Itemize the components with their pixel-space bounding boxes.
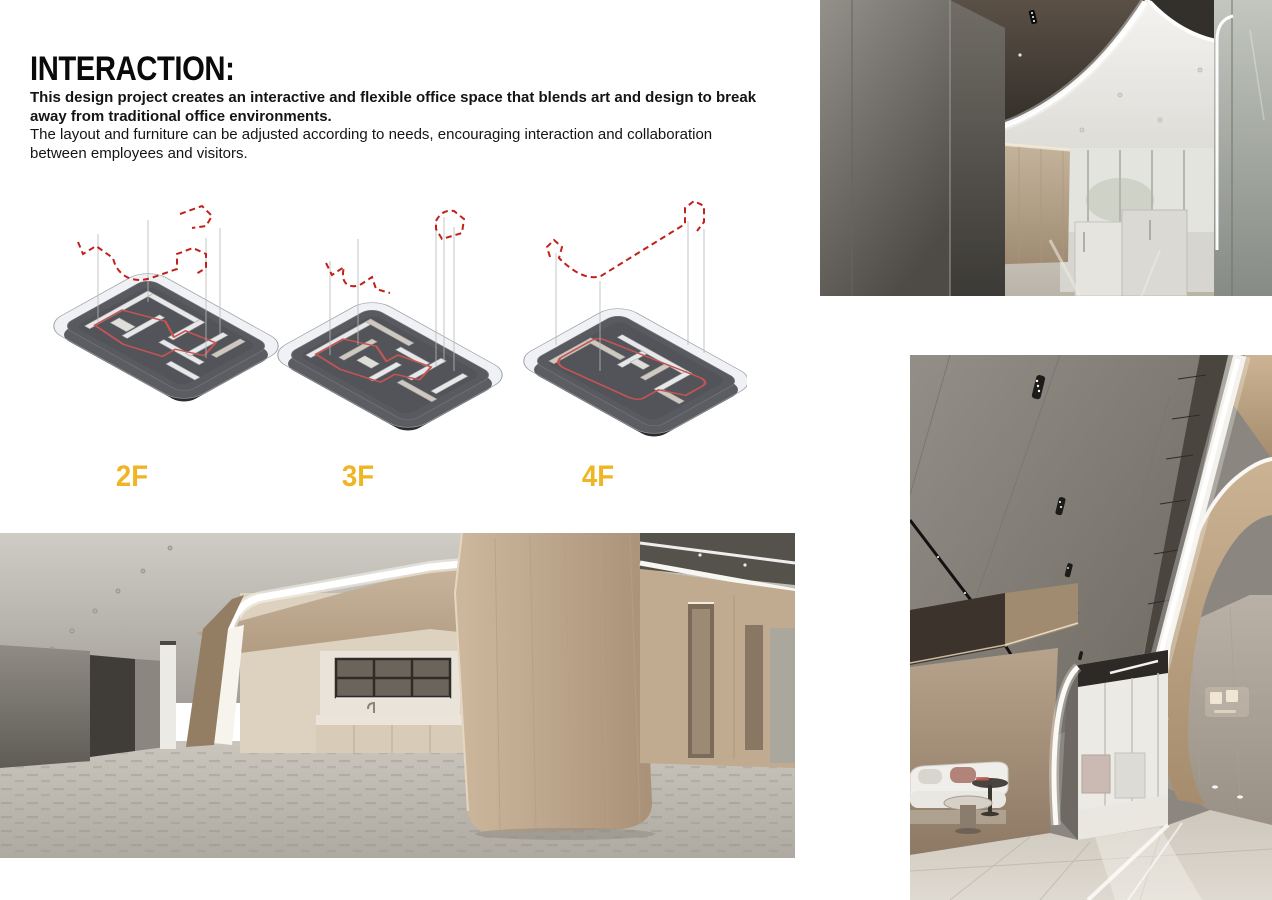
- lower-cabinets: [316, 725, 466, 753]
- red-sky-hook-2f: [180, 206, 212, 228]
- glass-shell-4f: [513, 303, 747, 440]
- foreground-wood-pillar: [455, 533, 655, 840]
- intro-bold-paragraph: This design project creates an interacti…: [30, 89, 756, 126]
- red-sky-outline-4f: [547, 201, 704, 277]
- wall-logo: [1205, 687, 1249, 717]
- glass-column: [1214, 0, 1272, 296]
- left-wall-panels: [820, 0, 1005, 296]
- intro-regular-line-1: The layout and furniture can be adjusted…: [30, 126, 712, 145]
- intro-bold-line-2: away from traditional office environment…: [30, 108, 756, 127]
- door-recess-2: [745, 625, 763, 750]
- slab-3f: [267, 297, 505, 434]
- slab-4f: [513, 303, 747, 440]
- intro-bold-line-1: This design project creates an interacti…: [30, 89, 756, 108]
- counter: [316, 715, 466, 725]
- floor-diagram-4f: [492, 195, 747, 470]
- glass-shell-3f: [267, 297, 505, 434]
- floor-label-4f: 4F: [569, 460, 628, 494]
- page-title: INTERACTION:: [30, 50, 234, 89]
- gray-cushion: [918, 769, 942, 784]
- intro-regular-paragraph: The layout and furniture can be adjusted…: [30, 126, 712, 163]
- photo-pantry-corridor: [0, 533, 795, 858]
- table-book: [976, 777, 989, 781]
- desk-partition: [1082, 755, 1110, 793]
- portfolio-page: INTERACTION: This design project creates…: [0, 0, 1272, 900]
- floor-label-3f: 3F: [329, 460, 388, 494]
- floor-label-2f: 2F: [103, 460, 162, 494]
- floor-diagram-3f: [240, 195, 505, 453]
- right-corridor: [640, 533, 795, 768]
- intro-regular-line-2: between employees and visitors.: [30, 145, 712, 164]
- glass-partition: [770, 628, 795, 763]
- pink-cushion: [950, 767, 976, 783]
- window-portal: [1078, 650, 1168, 840]
- left-gray-walls: [0, 641, 176, 768]
- carpet-pattern: [0, 748, 795, 858]
- storage-cabinets: [1075, 210, 1187, 296]
- photo-office-daylight: [820, 0, 1272, 296]
- pantry-shelves: [336, 659, 450, 698]
- red-sky-loop-3f: [436, 211, 464, 239]
- photo-lobby-reception: [910, 355, 1272, 900]
